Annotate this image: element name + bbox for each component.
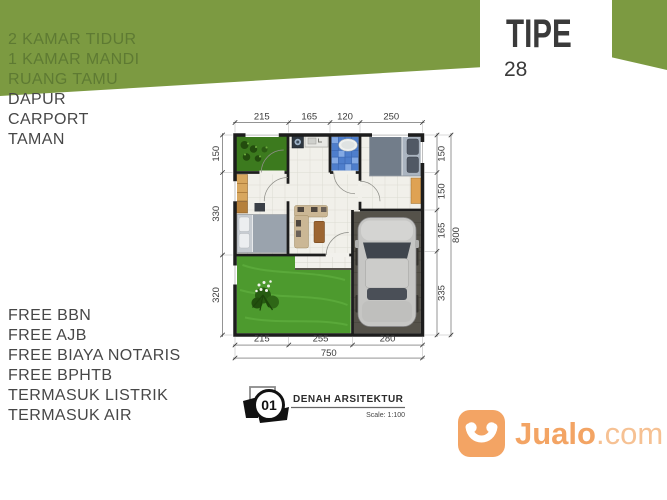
bedside-table-icon [255, 203, 266, 212]
porch [295, 255, 352, 270]
dim-label: 215 [254, 112, 270, 123]
jualo-smile-icon [458, 410, 505, 457]
dim-label: 150 [211, 146, 222, 162]
flyer-canvas: TIPE 28 2 KAMAR TIDUR 1 KAMAR MANDI RUAN… [0, 0, 667, 500]
feature-item: RUANG TAMU [8, 70, 139, 90]
dim-label: 120 [337, 112, 353, 123]
promo-item: FREE BBN [8, 306, 181, 326]
type-label: TIPE [506, 12, 572, 57]
dim-label-total: 800 [451, 227, 462, 243]
feature-list-top: 2 KAMAR TIDUR 1 KAMAR MANDI RUANG TAMU D… [8, 30, 139, 150]
dim-label: 280 [380, 334, 396, 345]
feature-list-bottom: FREE BBN FREE AJB FREE BIAYA NOTARIS FRE… [8, 306, 181, 426]
dim-label: 150 [437, 146, 448, 162]
drawing-title-block: 01 DENAH ARSITEKTUR Scale: 1:100 [243, 381, 413, 427]
type-number: 28 [504, 58, 527, 82]
promo-item: FREE BPHTB [8, 366, 181, 386]
floor-plan: 215 165 120 250 150 330 320 150 150 165 … [205, 103, 470, 367]
jualo-brand-text: Jualo.com [515, 410, 663, 457]
feature-item: 2 KAMAR TIDUR [8, 30, 139, 50]
promo-item: FREE AJB [8, 326, 181, 346]
wardrobe [237, 175, 248, 214]
coffee-table-icon [314, 221, 325, 243]
drawing-title: DENAH ARSITEKTUR [293, 394, 404, 405]
bed-right [370, 137, 421, 177]
promo-item: TERMASUK LISTRIK [8, 386, 181, 406]
bed-left [237, 215, 287, 253]
dim-label: 330 [211, 206, 222, 222]
drawing-number: 01 [261, 397, 277, 413]
dim-label: 150 [437, 183, 448, 199]
green-ribbon-right [612, 0, 667, 70]
feature-item: TAMAN [8, 130, 139, 150]
dim-label: 320 [211, 287, 222, 303]
feature-item: CARPORT [8, 110, 139, 130]
dim-label: 255 [313, 334, 329, 345]
jualo-brand-suffix: .com [596, 416, 663, 451]
promo-item: FREE BIAYA NOTARIS [8, 346, 181, 366]
jualo-watermark: Jualo.com [458, 410, 663, 457]
dim-label: 335 [437, 285, 448, 301]
promo-item: TERMASUK AIR [8, 406, 181, 426]
cabinet-icon [411, 178, 421, 204]
dim-label: 215 [254, 334, 270, 345]
dim-label-total: 750 [321, 348, 337, 359]
dim-label: 165 [301, 112, 317, 123]
feature-item: DAPUR [8, 90, 139, 110]
dim-label: 165 [437, 223, 448, 239]
feature-item: 1 KAMAR MANDI [8, 50, 139, 70]
bathroom [332, 137, 359, 171]
car-icon [355, 218, 419, 327]
kitchen-counter [292, 136, 328, 148]
jualo-brand-bold: Jualo [515, 416, 596, 451]
drawing-scale: Scale: 1:100 [366, 412, 405, 419]
dim-label: 250 [383, 112, 399, 123]
